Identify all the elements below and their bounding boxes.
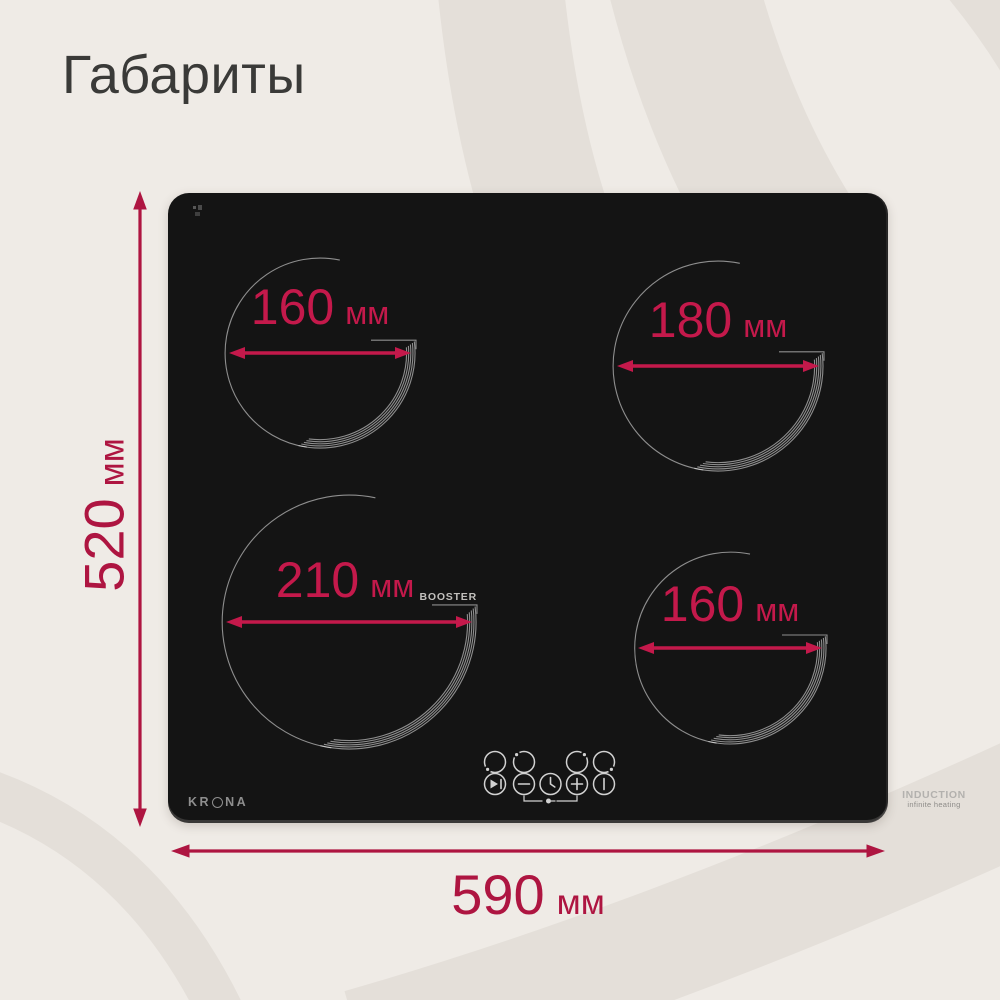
induction-badge-line2: infinite heating bbox=[854, 801, 1000, 810]
page-title: Габариты bbox=[62, 44, 306, 106]
induction-badge: INDUCTION infinite heating bbox=[854, 789, 1000, 810]
brand-text-prefix: KR bbox=[188, 795, 211, 809]
burner-size-value: 160 bbox=[251, 278, 334, 336]
burner-size-unit: мм bbox=[743, 308, 787, 345]
burner-size-unit: мм bbox=[370, 568, 414, 605]
burner-size-label-bottom-left: 210мм bbox=[276, 551, 414, 609]
burner-size-value: 160 bbox=[661, 575, 744, 633]
booster-label: BOOSTER bbox=[419, 591, 477, 603]
burner-size-value: 210 bbox=[276, 551, 359, 609]
burner-size-unit: мм bbox=[755, 592, 799, 629]
width-dimension-label: 590мм bbox=[451, 862, 605, 927]
height-dimension-label: 520мм bbox=[72, 438, 137, 592]
burner-size-label-bottom-right: 160мм bbox=[661, 575, 799, 633]
burner-size-label-top-left: 160мм bbox=[251, 278, 389, 336]
brand-text-suffix: NA bbox=[225, 795, 248, 809]
height-unit: мм bbox=[93, 438, 133, 486]
hob-mark-icon bbox=[192, 204, 204, 218]
burner-size-unit: мм bbox=[345, 295, 389, 332]
burner-size-value: 180 bbox=[649, 291, 732, 349]
brand-o-ring-icon bbox=[212, 797, 223, 808]
width-unit: мм bbox=[557, 883, 605, 923]
width-value: 590 bbox=[451, 862, 544, 927]
brand-logo: KRNA bbox=[188, 795, 248, 809]
burner-size-label-top-right: 180мм bbox=[649, 291, 787, 349]
dimensions-diagram: Габариты KRNA INDUCTION infinite heating bbox=[0, 0, 1000, 1000]
height-value: 520 bbox=[72, 498, 137, 591]
